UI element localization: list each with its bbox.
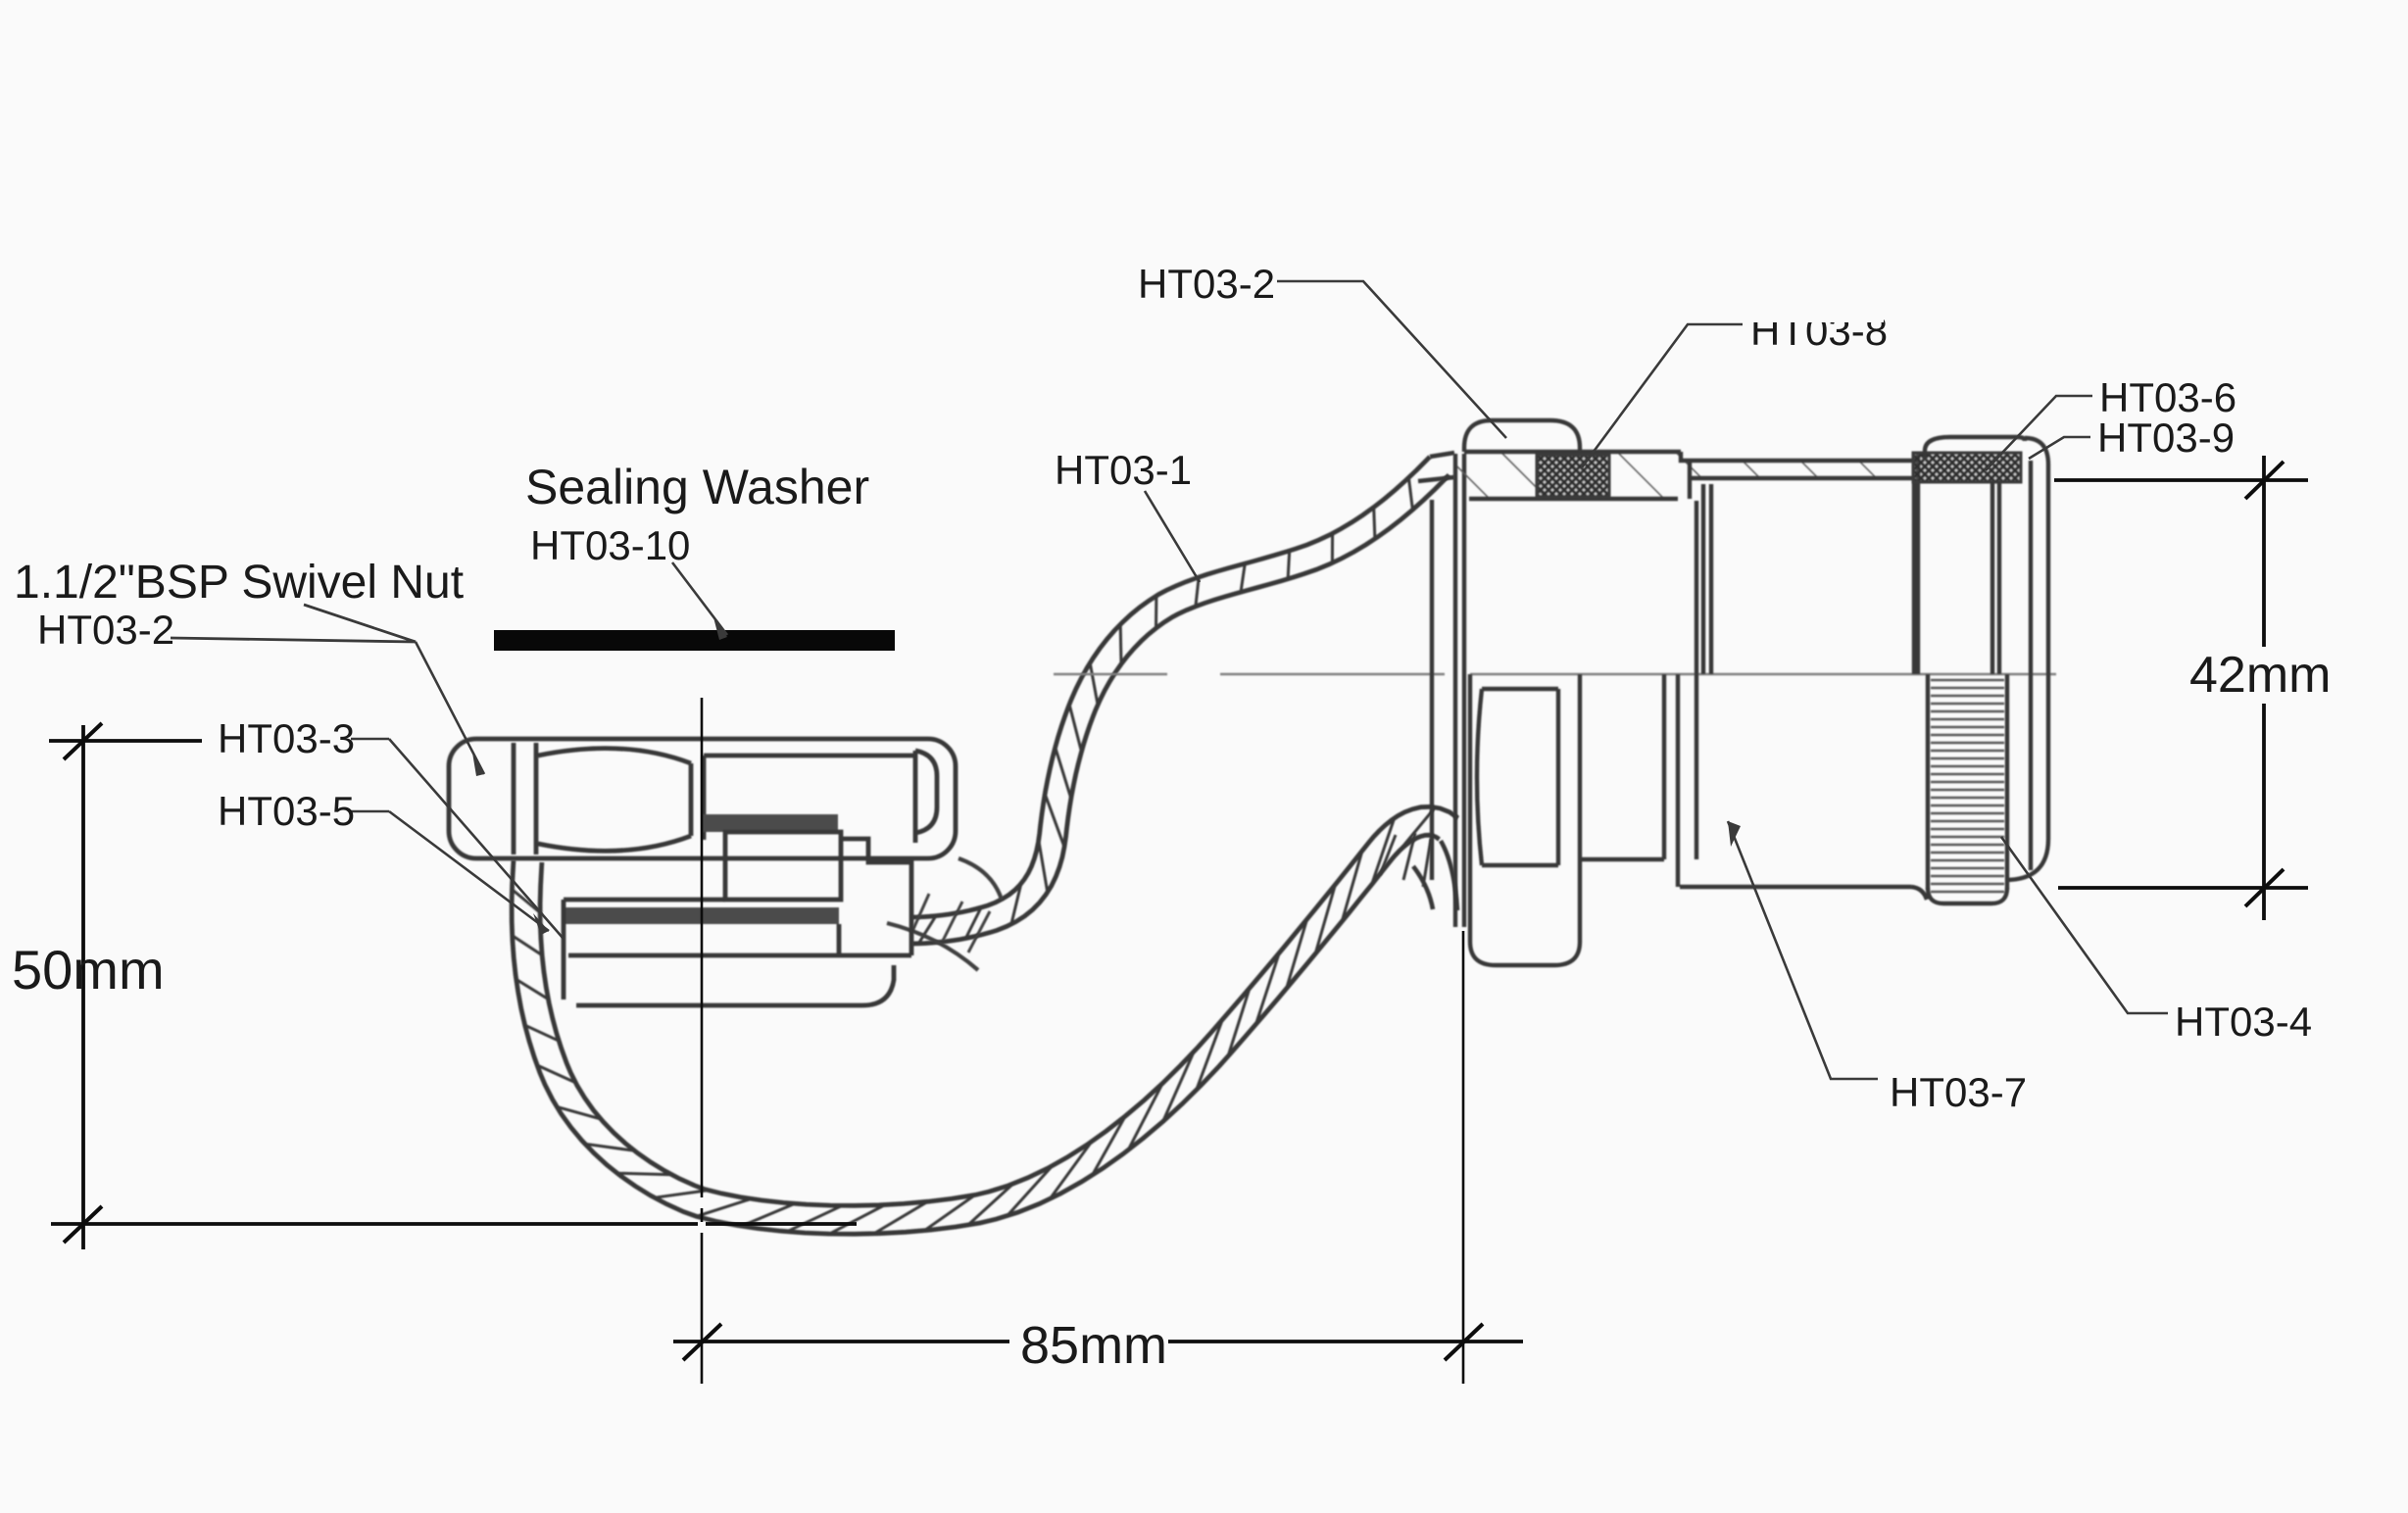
svg-text:42mm: 42mm	[2189, 647, 2331, 704]
svg-text:50mm: 50mm	[12, 939, 165, 1001]
svg-text:Sealing Washer: Sealing Washer	[525, 460, 869, 514]
svg-text:HT03-4: HT03-4	[2175, 999, 2312, 1045]
svg-text:HT03-2: HT03-2	[37, 607, 174, 653]
svg-text:HT03-6: HT03-6	[2099, 374, 2236, 420]
svg-text:HT03-5: HT03-5	[218, 788, 355, 834]
svg-text:HT03-9: HT03-9	[2097, 415, 2235, 461]
svg-text:1.1/2"BSP Swivel Nut: 1.1/2"BSP Swivel Nut	[14, 557, 464, 609]
svg-text:HT03-10: HT03-10	[530, 522, 690, 568]
svg-text:HT03-1: HT03-1	[1055, 447, 1192, 493]
svg-text:HT03-3: HT03-3	[218, 715, 355, 761]
svg-text:HT03-7: HT03-7	[1890, 1069, 2027, 1115]
svg-text:85mm: 85mm	[1020, 1316, 1167, 1375]
svg-text:HT03-2: HT03-2	[1138, 261, 1275, 307]
